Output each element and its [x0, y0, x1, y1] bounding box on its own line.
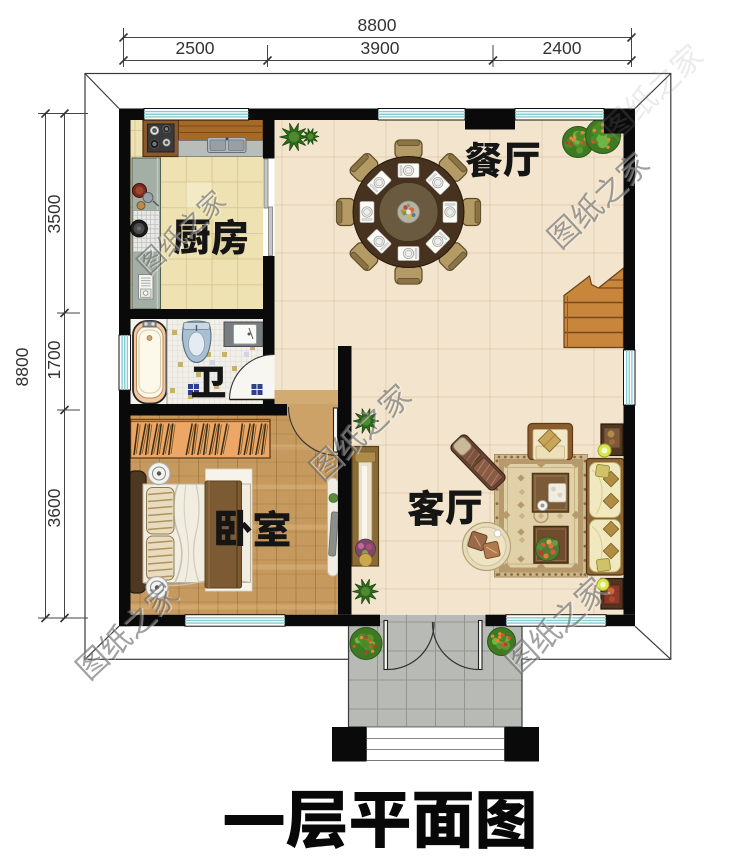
svg-text:2500: 2500: [176, 38, 215, 58]
svg-text:3500: 3500: [44, 194, 64, 233]
svg-text:3900: 3900: [361, 38, 400, 58]
svg-text:2400: 2400: [543, 38, 582, 58]
svg-text:1700: 1700: [44, 340, 64, 379]
svg-text:8800: 8800: [358, 15, 397, 35]
svg-text:3600: 3600: [44, 488, 64, 527]
svg-text:8800: 8800: [12, 347, 32, 386]
